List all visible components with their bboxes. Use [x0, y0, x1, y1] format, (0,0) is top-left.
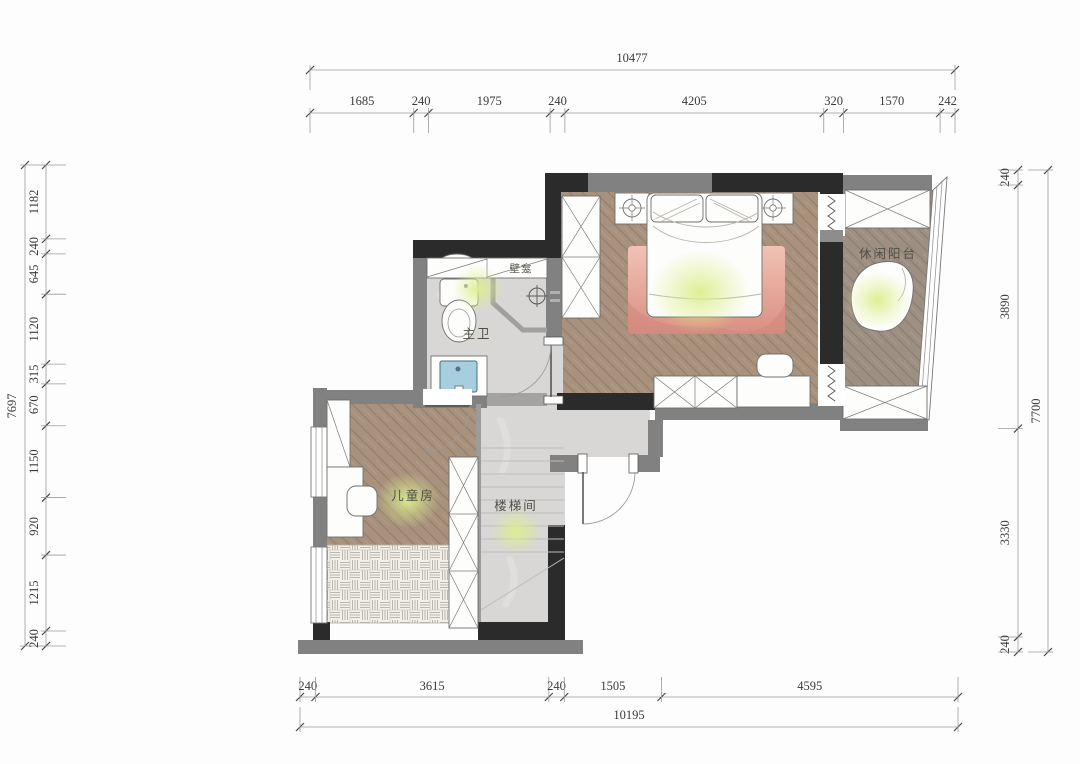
bedroom-dresser [654, 376, 737, 408]
svg-text:240: 240 [998, 168, 1012, 187]
bedroom-door-threshold [547, 344, 563, 400]
wall [712, 173, 843, 192]
svg-text:240: 240 [547, 679, 566, 693]
label-stairwell: 楼梯间 [494, 498, 538, 513]
ceiling-light-glow [490, 508, 542, 554]
svg-text:7697: 7697 [5, 394, 19, 419]
svg-text:240: 240 [548, 94, 567, 108]
faucet-icon [456, 367, 461, 372]
kids-wardrobe [449, 457, 478, 628]
wall-balcony-top [843, 175, 932, 190]
ceiling-light-glow [846, 272, 910, 328]
balcony-sliding-door-top [818, 194, 845, 242]
wall-entry-right [637, 455, 660, 472]
kids-cabinet [327, 400, 350, 467]
svg-text:240: 240 [998, 635, 1012, 654]
svg-text:3330: 3330 [998, 520, 1012, 545]
wall [487, 393, 547, 406]
svg-text:670: 670 [27, 395, 41, 414]
svg-text:645: 645 [27, 265, 41, 284]
ceiling-light-glow [452, 265, 504, 313]
wall-bathroom-top [413, 240, 557, 258]
svg-text:240: 240 [412, 94, 431, 108]
wall [413, 258, 427, 395]
svg-text:10195: 10195 [613, 708, 644, 722]
kids-chair [347, 486, 377, 516]
bedroom-window-band [588, 173, 712, 192]
svg-text:1505: 1505 [600, 679, 625, 693]
bedroom-wardrobe [562, 196, 600, 318]
bedroom-desk [737, 376, 810, 407]
svg-text:10477: 10477 [616, 51, 647, 65]
entry-door [578, 454, 638, 524]
wall [313, 497, 327, 547]
nightstand-left [615, 193, 649, 224]
svg-text:1150: 1150 [27, 449, 41, 474]
dimension-bottom: 10195240361524015054595 [296, 677, 962, 732]
wall [478, 622, 565, 640]
svg-text:4205: 4205 [682, 94, 707, 108]
floor-plan-canvas: 主卫 壁龛 休闲阳台 儿童房 楼梯间 104771685240197524042… [0, 0, 1080, 764]
wall [313, 622, 330, 640]
svg-text:240: 240 [27, 237, 41, 256]
wall-balcony-bottom [840, 418, 928, 431]
svg-text:240: 240 [298, 679, 317, 693]
label-master-bath: 主卫 [462, 327, 491, 341]
svg-text:1182: 1182 [27, 190, 41, 215]
ceiling-light-glow [650, 250, 750, 334]
label-kids-room: 儿童房 [391, 488, 435, 503]
svg-text:315: 315 [27, 365, 41, 384]
svg-text:1685: 1685 [349, 94, 374, 108]
floor-plan-svg: 主卫 壁龛 休闲阳台 儿童房 楼梯间 104771685240197524042… [0, 0, 1080, 764]
bedroom-chair [757, 354, 793, 377]
svg-text:3890: 3890 [998, 294, 1012, 319]
wall [313, 388, 327, 427]
svg-text:920: 920 [27, 517, 41, 536]
label-leisure-balcony: 休闲阳台 [859, 246, 917, 261]
balcony-cabinet-bottom [843, 386, 927, 419]
wall [545, 173, 590, 192]
dimension-left: 76971182240645112031567011509201215240 [5, 161, 66, 650]
kids-window-lower [311, 547, 327, 623]
dimension-top: 104771685240197524042053201570242 [306, 51, 959, 133]
svg-text:240: 240 [27, 629, 41, 648]
svg-text:1120: 1120 [27, 317, 41, 342]
kids-tatami-mat [327, 545, 452, 623]
balcony-cabinet-top [845, 190, 930, 228]
kids-window-upper [311, 427, 327, 497]
svg-text:1975: 1975 [477, 94, 502, 108]
svg-text:3615: 3615 [420, 679, 445, 693]
svg-text:1215: 1215 [27, 581, 41, 606]
svg-text:4595: 4595 [797, 679, 822, 693]
dimension-right: 770024038903330240 [998, 166, 1053, 656]
wall-bottom-skirt [298, 640, 583, 654]
svg-text:242: 242 [938, 94, 957, 108]
svg-text:1570: 1570 [879, 94, 904, 108]
label-niche: 壁龛 [510, 262, 533, 275]
svg-text:320: 320 [824, 94, 843, 108]
wall [648, 420, 663, 457]
svg-text:7700: 7700 [1029, 399, 1043, 424]
balcony-sliding-door-bottom [818, 364, 845, 406]
wall [557, 393, 655, 410]
